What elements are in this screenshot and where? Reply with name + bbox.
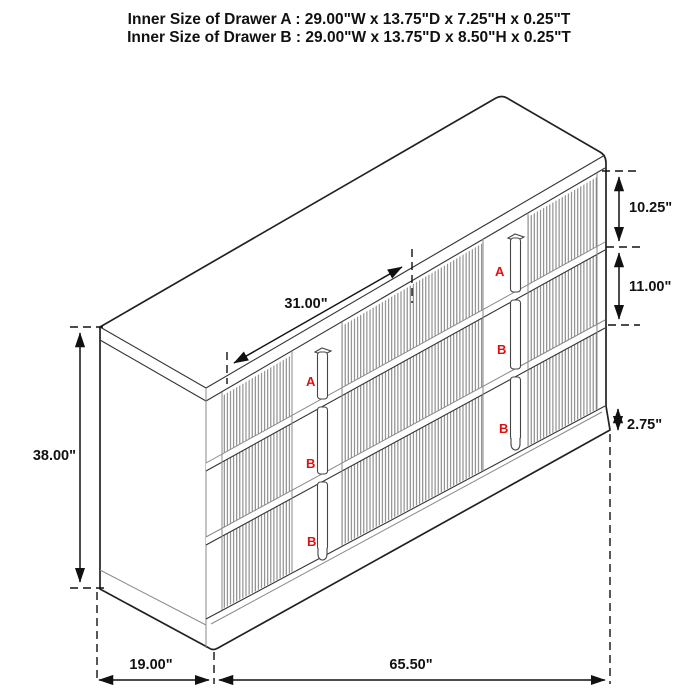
title-block: Inner Size of Drawer A : 29.00"W x 13.75… bbox=[127, 11, 571, 46]
dim-drawer-a-height: 10.25" bbox=[602, 171, 672, 247]
right-handle-foot bbox=[511, 438, 520, 450]
height-dim-label: 38.00" bbox=[33, 448, 76, 464]
left-handle-foot bbox=[318, 548, 327, 560]
dim-base-height: 2.75" bbox=[618, 409, 662, 433]
base-dim-label: 2.75" bbox=[627, 417, 662, 433]
right-handle-seg-c bbox=[511, 377, 521, 440]
left-handle-seg-c bbox=[318, 482, 328, 550]
fluted-panel-left bbox=[222, 355, 292, 609]
left-handle-seg-a bbox=[318, 352, 328, 399]
drawer-b-size-text: Inner Size of Drawer B : 29.00"W x 13.75… bbox=[127, 29, 571, 46]
right-drawer-b1-label: B bbox=[497, 342, 506, 357]
left-drawer-b1-label: B bbox=[306, 456, 315, 471]
right-drawer-b2-label: B bbox=[499, 421, 508, 436]
width-dim-label: 65.50" bbox=[389, 657, 432, 673]
left-handle-seg-b bbox=[318, 407, 328, 474]
sideboard-drawing: A B B A B B bbox=[100, 97, 610, 650]
drawer-b-dim-label: 11.00" bbox=[629, 279, 671, 295]
dim-overall-width: 65.50" bbox=[219, 657, 605, 680]
drawer-a-dim-label: 10.25" bbox=[629, 200, 672, 216]
drawer-a-size-text: Inner Size of Drawer A : 29.00"W x 13.75… bbox=[128, 11, 571, 28]
dim-overall-height: 38.00" bbox=[33, 327, 105, 588]
left-drawer-a-label: A bbox=[306, 374, 316, 389]
right-handle-seg-b bbox=[511, 300, 521, 369]
dim-overall-depth: 19.00" bbox=[99, 657, 209, 680]
left-drawer-b2-label: B bbox=[307, 534, 316, 549]
product-dimension-diagram: Inner Size of Drawer A : 29.00"W x 13.75… bbox=[0, 0, 700, 700]
width31-dim-label: 31.00" bbox=[284, 296, 327, 312]
dim-drawer-b-height: 11.00" bbox=[608, 253, 671, 325]
diagram-canvas: Inner Size of Drawer A : 29.00"W x 13.75… bbox=[0, 0, 700, 700]
depth-dim-label: 19.00" bbox=[129, 657, 172, 673]
fluted-panel-right bbox=[528, 177, 597, 446]
right-handle-seg-a bbox=[511, 238, 521, 292]
right-drawer-a-label: A bbox=[495, 264, 505, 279]
